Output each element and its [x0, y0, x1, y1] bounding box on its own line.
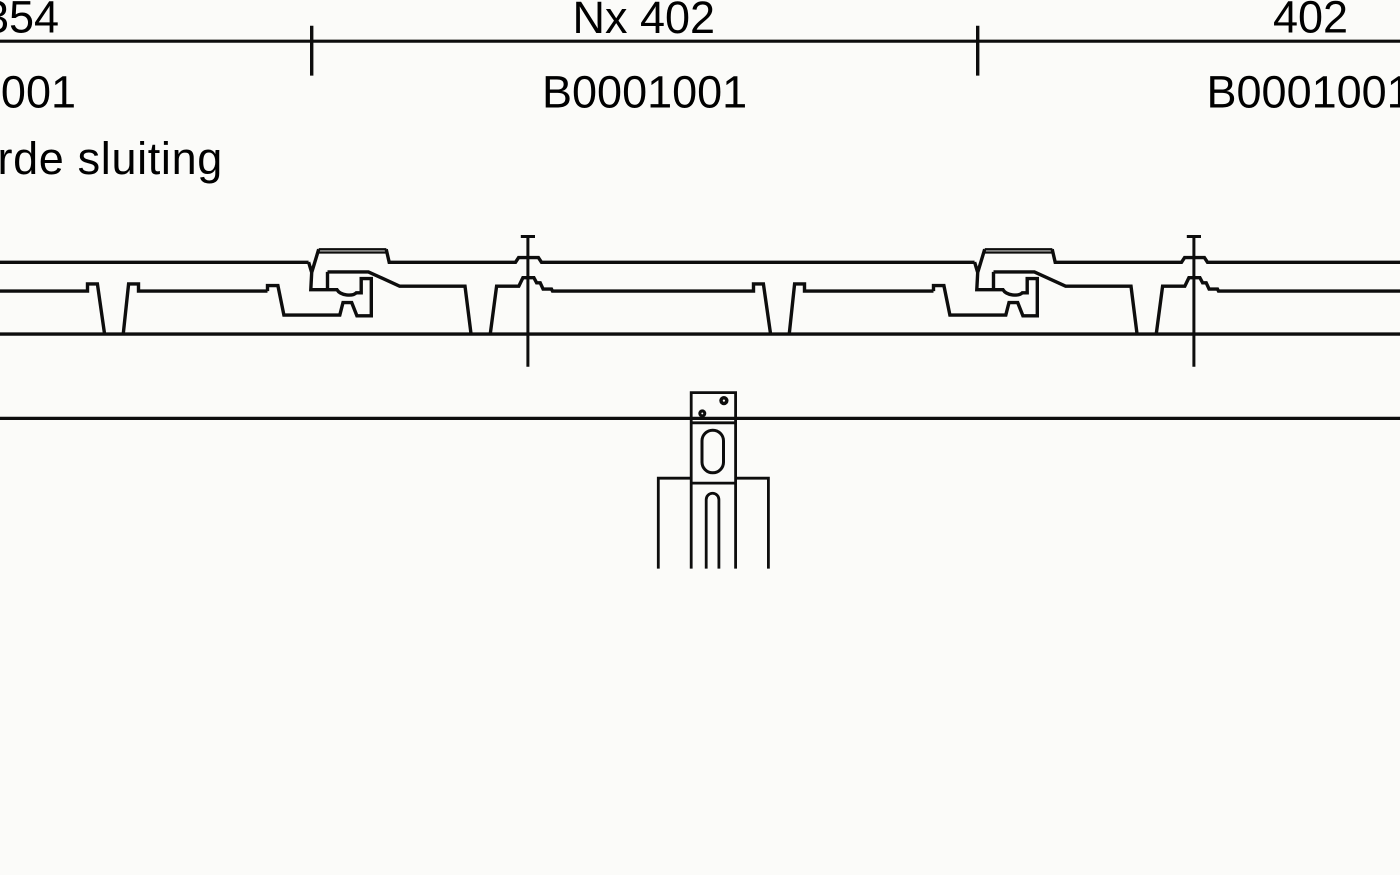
svg-text:354: 354: [0, 0, 59, 43]
svg-text:402: 402: [1273, 0, 1348, 43]
svg-text:rde sluiting: rde sluiting: [0, 133, 223, 184]
svg-text:B0001001: B0001001: [1207, 67, 1400, 118]
svg-text:B0001001: B0001001: [0, 67, 76, 118]
svg-text:B0001001: B0001001: [542, 67, 747, 118]
svg-text:Nx 402: Nx 402: [573, 0, 716, 43]
